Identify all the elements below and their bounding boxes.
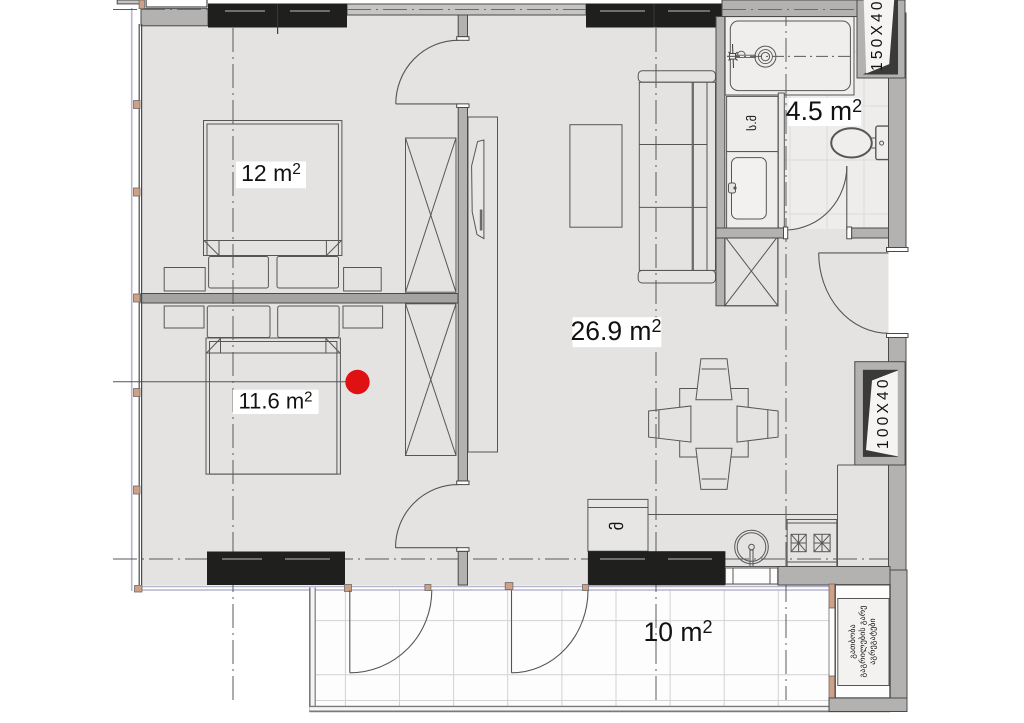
svg-text:4.5 m2: 4.5 m2 [786, 96, 862, 126]
svg-text:100X40: 100X40 [875, 376, 892, 449]
svg-text:11.6 m2: 11.6 m2 [239, 389, 313, 414]
svg-text:12 m2: 12 m2 [241, 160, 301, 186]
svg-text:მ: მ [608, 522, 627, 531]
svg-text:აგრეგატები: აგრეგატები [868, 618, 877, 665]
svg-text:150X40: 150X40 [869, 0, 886, 71]
svg-text:ს.მ: ს.მ [745, 115, 759, 131]
svg-text:გათბობა: გათბობა [848, 624, 857, 659]
svg-text:გაგრილების გარე: გაგრილების გარე [858, 606, 867, 678]
svg-text:26.9 m2: 26.9 m2 [570, 316, 661, 346]
svg-text:10 m2: 10 m2 [644, 617, 713, 647]
